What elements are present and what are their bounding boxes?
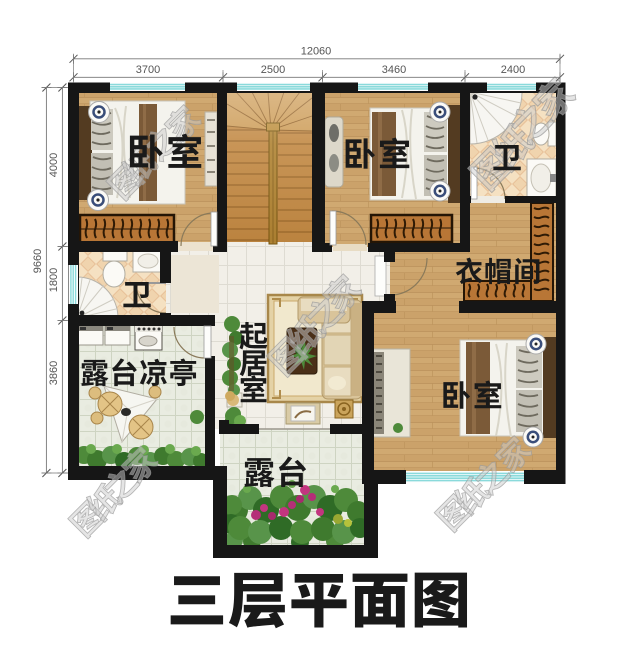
svg-text:12060: 12060 [301, 46, 332, 58]
svg-text:3860: 3860 [48, 361, 60, 385]
svg-text:3460: 3460 [382, 64, 406, 76]
svg-text:9660: 9660 [32, 249, 44, 273]
svg-text:1800: 1800 [48, 268, 60, 292]
svg-text:2400: 2400 [501, 64, 525, 76]
svg-text:3700: 3700 [136, 64, 160, 76]
svg-text:2500: 2500 [261, 64, 285, 76]
svg-text:4000: 4000 [48, 153, 60, 177]
